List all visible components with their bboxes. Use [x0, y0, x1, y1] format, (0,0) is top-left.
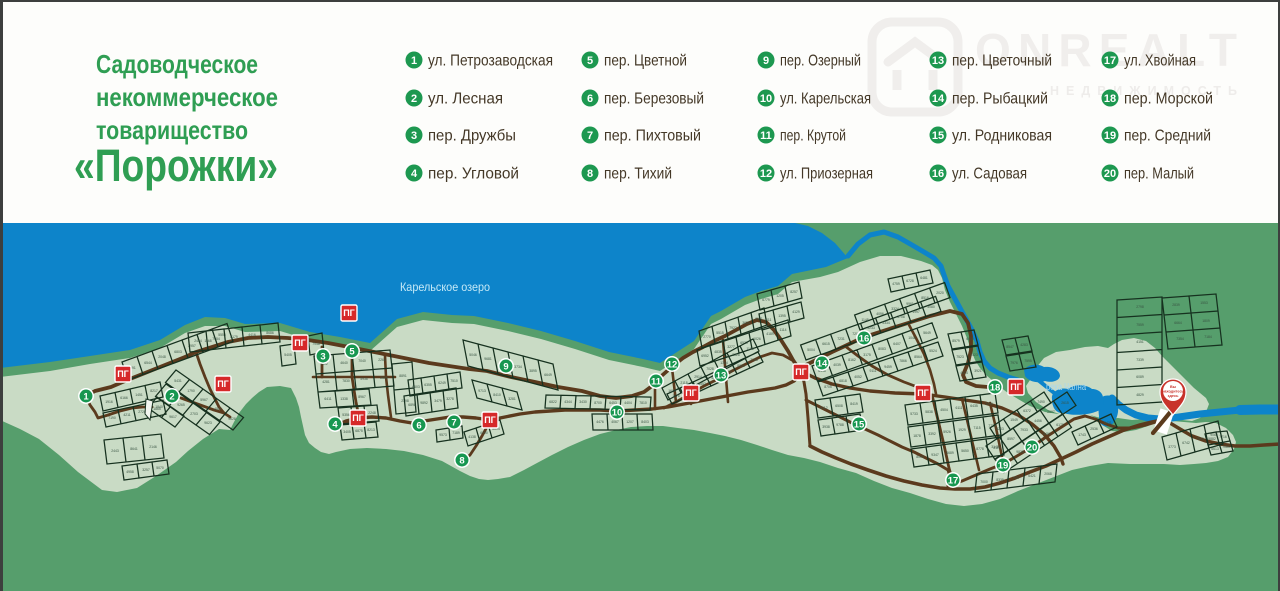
svg-text:5405: 5405 — [284, 353, 292, 357]
svg-text:ул. Лесная: ул. Лесная — [428, 91, 503, 108]
svg-text:2536: 2536 — [1090, 427, 1098, 431]
svg-text:8083: 8083 — [878, 347, 886, 351]
svg-text:8700: 8700 — [594, 401, 602, 405]
svg-text:ул. Петрозаводская: ул. Петрозаводская — [428, 53, 553, 70]
svg-text:15: 15 — [854, 419, 865, 430]
svg-text:6411: 6411 — [324, 397, 331, 401]
svg-text:8516: 8516 — [921, 296, 929, 300]
svg-text:9623: 9623 — [204, 421, 212, 425]
svg-text:ПГ: ПГ — [917, 388, 929, 398]
svg-text:1549: 1549 — [1010, 418, 1018, 422]
svg-text:8263: 8263 — [996, 427, 1004, 431]
svg-text:1338: 1338 — [340, 397, 348, 401]
svg-text:1929: 1929 — [958, 428, 966, 432]
svg-text:ПГ: ПГ — [217, 379, 229, 389]
svg-text:6952: 6952 — [701, 354, 709, 358]
svg-text:8597: 8597 — [1007, 437, 1015, 441]
svg-text:16: 16 — [932, 168, 944, 180]
svg-text:6779: 6779 — [762, 298, 770, 302]
svg-text:17: 17 — [1104, 55, 1116, 67]
svg-text:ПГ: ПГ — [1010, 382, 1022, 392]
svg-text:7510: 7510 — [450, 379, 458, 383]
svg-text:2798: 2798 — [1136, 305, 1144, 309]
svg-text:16: 16 — [859, 333, 870, 344]
svg-text:7523: 7523 — [956, 355, 964, 359]
svg-text:7503: 7503 — [1196, 437, 1204, 441]
svg-text:1809: 1809 — [1202, 319, 1210, 323]
svg-text:4067: 4067 — [611, 420, 619, 424]
svg-text:пер. Средний: пер. Средний — [1124, 128, 1211, 145]
svg-text:6407: 6407 — [893, 342, 901, 346]
svg-text:ул. Хвойная: ул. Хвойная — [1124, 53, 1196, 70]
svg-text:8213: 8213 — [367, 428, 375, 432]
svg-text:1523: 1523 — [970, 353, 978, 357]
svg-text:6803: 6803 — [174, 350, 182, 354]
svg-text:3653: 3653 — [742, 321, 750, 325]
svg-text:9892: 9892 — [420, 401, 428, 405]
svg-text:7595: 7595 — [1024, 359, 1032, 363]
svg-text:5334: 5334 — [882, 321, 890, 325]
svg-text:Садоводческое: Садоводческое — [96, 49, 258, 79]
svg-text:6619: 6619 — [966, 337, 974, 341]
svg-text:19: 19 — [998, 460, 1009, 471]
svg-text:ПГ: ПГ — [117, 369, 129, 379]
svg-text:8891: 8891 — [399, 374, 407, 378]
svg-text:6544: 6544 — [144, 361, 152, 365]
svg-text:5882: 5882 — [1208, 437, 1216, 441]
svg-text:6111: 6111 — [955, 406, 962, 410]
svg-text:5070: 5070 — [156, 466, 164, 470]
svg-text:9961: 9961 — [906, 302, 914, 306]
svg-text:3479: 3479 — [434, 399, 442, 403]
svg-text:6170: 6170 — [1056, 423, 1064, 427]
svg-text:5649: 5649 — [923, 331, 931, 335]
svg-text:7000: 7000 — [980, 480, 988, 484]
svg-text:7115: 7115 — [973, 426, 980, 430]
svg-text:4129: 4129 — [792, 310, 800, 314]
svg-text:6390: 6390 — [480, 431, 488, 435]
svg-text:20: 20 — [1104, 168, 1116, 180]
svg-text:6649: 6649 — [544, 373, 552, 377]
svg-text:7339: 7339 — [1136, 358, 1144, 362]
svg-text:13: 13 — [716, 370, 727, 381]
svg-text:3: 3 — [411, 130, 417, 142]
svg-text:пер. Цветочный: пер. Цветочный — [952, 53, 1052, 70]
svg-text:9628: 9628 — [228, 417, 236, 421]
svg-text:8339: 8339 — [996, 478, 1004, 482]
svg-text:8967: 8967 — [358, 395, 366, 399]
svg-text:«Порожки»: «Порожки» — [74, 140, 278, 191]
svg-text:3324: 3324 — [891, 307, 899, 311]
svg-text:1114: 1114 — [779, 328, 786, 332]
svg-text:5: 5 — [349, 346, 355, 357]
svg-text:4: 4 — [332, 419, 338, 430]
svg-text:6742: 6742 — [1182, 441, 1190, 445]
svg-text:4456: 4456 — [1034, 419, 1042, 423]
svg-text:1790: 1790 — [187, 389, 195, 393]
svg-text:3938: 3938 — [822, 425, 830, 429]
svg-text:8162: 8162 — [848, 358, 856, 362]
svg-text:14: 14 — [817, 358, 828, 369]
svg-text:Карельское озеро: Карельское озеро — [400, 280, 490, 294]
svg-text:8686: 8686 — [266, 331, 274, 335]
svg-text:6664: 6664 — [1174, 321, 1182, 325]
svg-text:8564: 8564 — [914, 355, 922, 359]
svg-text:5926: 5926 — [943, 430, 951, 434]
svg-text:5431: 5431 — [174, 379, 182, 383]
svg-text:7922: 7922 — [729, 326, 737, 330]
svg-text:2260: 2260 — [378, 358, 386, 362]
svg-text:2914: 2914 — [694, 375, 702, 379]
svg-text:2763: 2763 — [750, 358, 758, 362]
svg-text:4504: 4504 — [940, 408, 948, 412]
svg-text:7231: 7231 — [837, 337, 845, 341]
svg-text:8579: 8579 — [952, 339, 960, 343]
svg-text:9835: 9835 — [1016, 450, 1024, 454]
svg-text:пер. Пихтовый: пер. Пихтовый — [604, 128, 701, 145]
svg-text:17: 17 — [948, 475, 959, 486]
svg-text:5936: 5936 — [360, 377, 368, 381]
svg-text:6112: 6112 — [820, 406, 827, 410]
svg-text:9573: 9573 — [439, 433, 447, 437]
svg-text:пер. Морской: пер. Морской — [1124, 91, 1213, 108]
svg-text:18: 18 — [990, 382, 1001, 393]
svg-text:9111: 9111 — [869, 369, 876, 373]
svg-text:1168: 1168 — [204, 339, 211, 343]
svg-text:6435: 6435 — [970, 404, 978, 408]
svg-text:7490: 7490 — [1037, 400, 1045, 404]
svg-text:8705: 8705 — [824, 385, 832, 389]
svg-text:8419: 8419 — [850, 402, 858, 406]
svg-text:3392: 3392 — [928, 432, 936, 436]
svg-text:4096: 4096 — [876, 312, 884, 316]
svg-text:6249: 6249 — [438, 381, 446, 385]
svg-text:5356: 5356 — [342, 413, 350, 417]
svg-text:2615: 2615 — [1061, 401, 1069, 405]
svg-text:4958: 4958 — [126, 470, 134, 474]
svg-text:11: 11 — [760, 130, 772, 142]
svg-text:1176: 1176 — [672, 394, 679, 398]
svg-text:1916: 1916 — [105, 400, 113, 404]
svg-text:8410: 8410 — [493, 393, 501, 397]
svg-text:7354: 7354 — [1176, 337, 1184, 341]
svg-text:7946: 7946 — [312, 342, 320, 346]
svg-text:8179: 8179 — [230, 335, 238, 339]
svg-text:3080: 3080 — [927, 305, 935, 309]
svg-text:19: 19 — [1104, 130, 1116, 142]
svg-text:6508: 6508 — [835, 404, 843, 408]
svg-text:2020: 2020 — [936, 291, 944, 295]
svg-text:6728: 6728 — [906, 279, 914, 283]
svg-text:ул. Родниковая: ул. Родниковая — [952, 128, 1052, 145]
svg-text:6421: 6421 — [1028, 474, 1036, 478]
svg-text:пер. Озерный: пер. Озерный — [780, 53, 861, 70]
svg-text:некоммерческое: некоммерческое — [96, 82, 278, 112]
svg-text:4039: 4039 — [833, 363, 841, 367]
svg-text:9459: 9459 — [884, 365, 892, 369]
svg-text:ул. Садовая: ул. Садовая — [952, 166, 1027, 183]
svg-text:6089: 6089 — [1136, 375, 1144, 379]
svg-text:2770: 2770 — [703, 335, 711, 339]
svg-text:7: 7 — [587, 130, 593, 142]
svg-text:3405: 3405 — [343, 430, 351, 434]
svg-text:3773: 3773 — [1168, 445, 1176, 449]
svg-text:10: 10 — [612, 407, 623, 418]
svg-text:пер. Цветной: пер. Цветной — [604, 53, 687, 70]
svg-text:4281: 4281 — [322, 380, 330, 384]
svg-text:7189: 7189 — [452, 431, 460, 435]
svg-text:8896: 8896 — [737, 364, 745, 368]
svg-text:пер. Угловой: пер. Угловой — [428, 166, 519, 183]
svg-text:11: 11 — [651, 376, 662, 387]
svg-text:2068: 2068 — [1044, 472, 1052, 476]
svg-text:1046: 1046 — [908, 336, 916, 340]
svg-text:4189: 4189 — [766, 332, 774, 336]
svg-text:8778: 8778 — [976, 447, 984, 451]
svg-text:9617: 9617 — [169, 415, 177, 419]
svg-text:ПГ: ПГ — [294, 338, 306, 348]
svg-text:7184: 7184 — [1204, 335, 1212, 339]
svg-text:2607: 2607 — [1047, 410, 1055, 414]
svg-text:3708: 3708 — [897, 315, 905, 319]
svg-text:10: 10 — [760, 93, 772, 105]
svg-text:9: 9 — [503, 361, 508, 372]
svg-text:6166: 6166 — [120, 396, 128, 400]
svg-text:4052: 4052 — [854, 375, 862, 379]
svg-text:9: 9 — [763, 55, 769, 67]
svg-text:пер. Березовый: пер. Березовый — [604, 91, 704, 108]
svg-text:8547: 8547 — [1006, 345, 1014, 349]
svg-text:12: 12 — [667, 359, 678, 370]
svg-text:9788: 9788 — [836, 423, 844, 427]
svg-text:2048: 2048 — [158, 355, 166, 359]
svg-text:5838: 5838 — [925, 410, 933, 414]
svg-text:1: 1 — [411, 55, 417, 67]
svg-text:2: 2 — [411, 93, 417, 105]
svg-text:12: 12 — [760, 168, 772, 180]
svg-text:1451: 1451 — [135, 393, 143, 397]
svg-text:15: 15 — [932, 130, 944, 142]
svg-text:пер. Рыбацкий: пер. Рыбацкий — [952, 91, 1048, 108]
svg-text:4: 4 — [411, 168, 418, 180]
svg-text:Вы: Вы — [1170, 385, 1176, 389]
svg-text:18: 18 — [1104, 93, 1116, 105]
svg-text:4476: 4476 — [596, 420, 604, 424]
svg-text:7085: 7085 — [1222, 445, 1230, 449]
svg-text:4211: 4211 — [123, 413, 130, 417]
svg-text:7830: 7830 — [342, 379, 350, 383]
svg-text:7040: 7040 — [358, 359, 366, 363]
svg-text:пер. Тихий: пер. Тихий — [604, 166, 672, 183]
svg-text:6615: 6615 — [822, 342, 830, 346]
svg-text:7810: 7810 — [639, 401, 647, 405]
svg-text:3: 3 — [320, 351, 325, 362]
svg-text:5967: 5967 — [200, 398, 208, 402]
svg-text:5515: 5515 — [716, 331, 724, 335]
svg-text:6: 6 — [587, 93, 593, 105]
svg-text:3281: 3281 — [508, 397, 516, 401]
svg-text:1743: 1743 — [1078, 433, 1086, 437]
svg-text:пер. Дружбы: пер. Дружбы — [428, 128, 516, 145]
svg-text:8641: 8641 — [130, 447, 138, 451]
svg-text:1553: 1553 — [1200, 301, 1208, 305]
svg-text:7716: 7716 — [1219, 435, 1227, 439]
svg-text:3895: 3895 — [529, 369, 537, 373]
svg-text:4344: 4344 — [564, 400, 572, 404]
svg-text:4151: 4151 — [1136, 340, 1144, 344]
svg-text:ПГ: ПГ — [352, 413, 364, 423]
svg-text:1614: 1614 — [668, 389, 676, 393]
svg-text:9713: 9713 — [478, 389, 486, 393]
svg-text:2434: 2434 — [194, 339, 202, 343]
svg-text:9681: 9681 — [484, 357, 492, 361]
svg-text:7190: 7190 — [108, 416, 116, 420]
svg-text:пер. Малый: пер. Малый — [1124, 166, 1194, 183]
svg-text:1840: 1840 — [155, 405, 163, 409]
svg-text:3277: 3277 — [727, 345, 735, 349]
svg-text:6613: 6613 — [1211, 447, 1219, 451]
svg-text:6: 6 — [416, 420, 421, 431]
svg-text:7559: 7559 — [1136, 323, 1144, 327]
svg-text:8257: 8257 — [790, 290, 798, 294]
svg-text:6898: 6898 — [408, 403, 416, 407]
svg-text:5046: 5046 — [469, 353, 477, 357]
svg-text:8: 8 — [587, 168, 593, 180]
svg-text:1111: 1111 — [765, 318, 772, 322]
svg-text:3257: 3257 — [142, 468, 150, 472]
svg-text:8000: 8000 — [916, 455, 924, 459]
svg-text:1395: 1395 — [778, 314, 786, 318]
svg-text:4829: 4829 — [1136, 393, 1144, 397]
svg-text:4283: 4283 — [1020, 343, 1028, 347]
svg-text:8689: 8689 — [946, 451, 954, 455]
svg-text:находитесь: находитесь — [1162, 390, 1184, 394]
svg-text:3430: 3430 — [579, 400, 587, 404]
svg-text:6372: 6372 — [1023, 409, 1031, 413]
svg-text:8217: 8217 — [150, 389, 158, 393]
svg-text:3090: 3090 — [985, 402, 993, 406]
svg-text:1878: 1878 — [913, 434, 921, 438]
svg-text:1207: 1207 — [626, 420, 634, 424]
svg-text:ПГ: ПГ — [343, 308, 355, 318]
svg-text:5733: 5733 — [910, 412, 918, 416]
svg-text:ПГ: ПГ — [685, 388, 697, 398]
svg-text:1: 1 — [83, 391, 89, 402]
svg-text:8: 8 — [459, 455, 464, 466]
svg-text:3921: 3921 — [974, 369, 982, 373]
svg-text:5233: 5233 — [867, 326, 875, 330]
svg-text:2: 2 — [169, 391, 174, 402]
svg-text:6875: 6875 — [355, 429, 363, 433]
svg-text:6818: 6818 — [839, 379, 847, 383]
svg-text:1205: 1205 — [776, 294, 784, 298]
svg-text:4640: 4640 — [340, 361, 348, 365]
svg-text:ПГ: ПГ — [795, 367, 807, 377]
svg-text:8113: 8113 — [993, 446, 1000, 450]
svg-text:ул. Карельская: ул. Карельская — [780, 91, 871, 108]
svg-text:9347: 9347 — [931, 453, 939, 457]
svg-text:4922: 4922 — [214, 407, 222, 411]
svg-text:1384: 1384 — [720, 361, 728, 365]
svg-text:2248: 2248 — [368, 411, 376, 415]
svg-text:4138: 4138 — [468, 435, 476, 439]
svg-text:7933: 7933 — [1020, 428, 1028, 432]
svg-text:6431: 6431 — [1104, 421, 1112, 425]
svg-text:2659: 2659 — [380, 376, 388, 380]
svg-text:пер. Крутой: пер. Крутой — [780, 128, 846, 145]
svg-text:8403: 8403 — [641, 420, 649, 424]
svg-text:4474: 4474 — [960, 371, 968, 375]
svg-text:2839: 2839 — [1172, 303, 1180, 307]
svg-text:9265: 9265 — [177, 403, 185, 407]
svg-text:ПГ: ПГ — [484, 415, 496, 425]
svg-text:ул. Приозерная: ул. Приозерная — [780, 166, 873, 183]
svg-text:7984: 7984 — [212, 337, 220, 341]
svg-text:5491: 5491 — [1043, 432, 1051, 436]
svg-text:4404: 4404 — [624, 401, 632, 405]
svg-text:6822: 6822 — [549, 400, 557, 404]
svg-text:7866: 7866 — [899, 359, 907, 363]
svg-text:5: 5 — [587, 55, 593, 67]
svg-text:4416: 4416 — [248, 333, 256, 337]
svg-text:1148: 1148 — [861, 318, 868, 322]
svg-text:7976: 7976 — [1010, 361, 1018, 365]
svg-text:3326: 3326 — [732, 353, 740, 357]
svg-text:2146: 2146 — [149, 445, 157, 449]
svg-text:2443: 2443 — [111, 449, 119, 453]
svg-text:здесь: здесь — [1168, 394, 1179, 398]
svg-text:13: 13 — [932, 55, 944, 67]
svg-text:2703: 2703 — [190, 412, 198, 416]
svg-text:6481: 6481 — [920, 276, 928, 280]
svg-text:7097: 7097 — [1012, 476, 1020, 480]
svg-text:3734: 3734 — [514, 365, 522, 369]
svg-text:3175: 3175 — [863, 353, 871, 357]
svg-text:река Чална: река Чална — [1046, 382, 1086, 393]
svg-text:7028: 7028 — [706, 367, 714, 371]
svg-text:1997: 1997 — [912, 310, 920, 314]
svg-text:20: 20 — [1027, 442, 1038, 453]
svg-text:5650: 5650 — [961, 449, 969, 453]
svg-text:14: 14 — [932, 93, 945, 105]
svg-text:1108: 1108 — [746, 347, 753, 351]
svg-text:5004: 5004 — [807, 348, 815, 352]
svg-text:3278: 3278 — [446, 397, 454, 401]
svg-text:6355: 6355 — [424, 383, 432, 387]
svg-text:4759: 4759 — [892, 282, 900, 286]
svg-text:4835: 4835 — [714, 350, 722, 354]
svg-text:7: 7 — [451, 417, 456, 428]
svg-text:5524: 5524 — [929, 349, 937, 353]
svg-text:6603: 6603 — [412, 385, 420, 389]
